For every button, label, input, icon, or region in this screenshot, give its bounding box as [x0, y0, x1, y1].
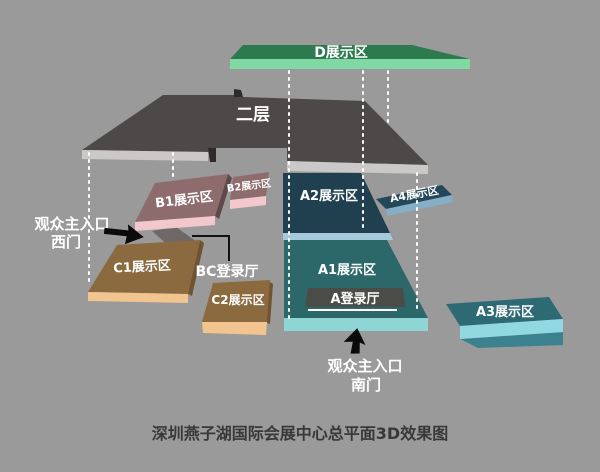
south-entrance-label-line1: 观众主入口 [327, 357, 402, 375]
block-a3: A3展示区 [446, 297, 563, 348]
block-c2: C2展示区 [202, 280, 273, 335]
bc-hall-label: BC登录厅 [196, 263, 259, 280]
west-entrance-label-line1: 观众主入口 [34, 215, 109, 233]
block-c2-front-face [202, 322, 267, 335]
a-hall-label: A登录厅 [330, 291, 379, 307]
west-entrance-label-line2: 西门 [51, 233, 81, 251]
caption-title: 深圳燕子湖国际会展中心总平面3D效果图 [152, 424, 448, 443]
block-a3-label: A3展示区 [476, 305, 534, 320]
block-a2-front-face [283, 233, 393, 240]
site-plan-3d-diagram: D展示区 二层 B1展示区 B2展示区 C1展示区 BC登录厅 [0, 0, 600, 472]
floor2-label: 二层 [236, 105, 270, 125]
block-a2-label: A2展示区 [300, 189, 358, 204]
south-entrance-label-line2: 南门 [351, 376, 381, 394]
block-a1-label: A1展示区 [318, 263, 376, 278]
block-b2: B2展示区 [226, 172, 272, 209]
block-d-label: D展示区 [314, 45, 368, 61]
block-c2-label: C2展示区 [211, 293, 264, 307]
block-a1-front-face [284, 318, 428, 331]
block-c1-label: C1展示区 [113, 259, 171, 277]
